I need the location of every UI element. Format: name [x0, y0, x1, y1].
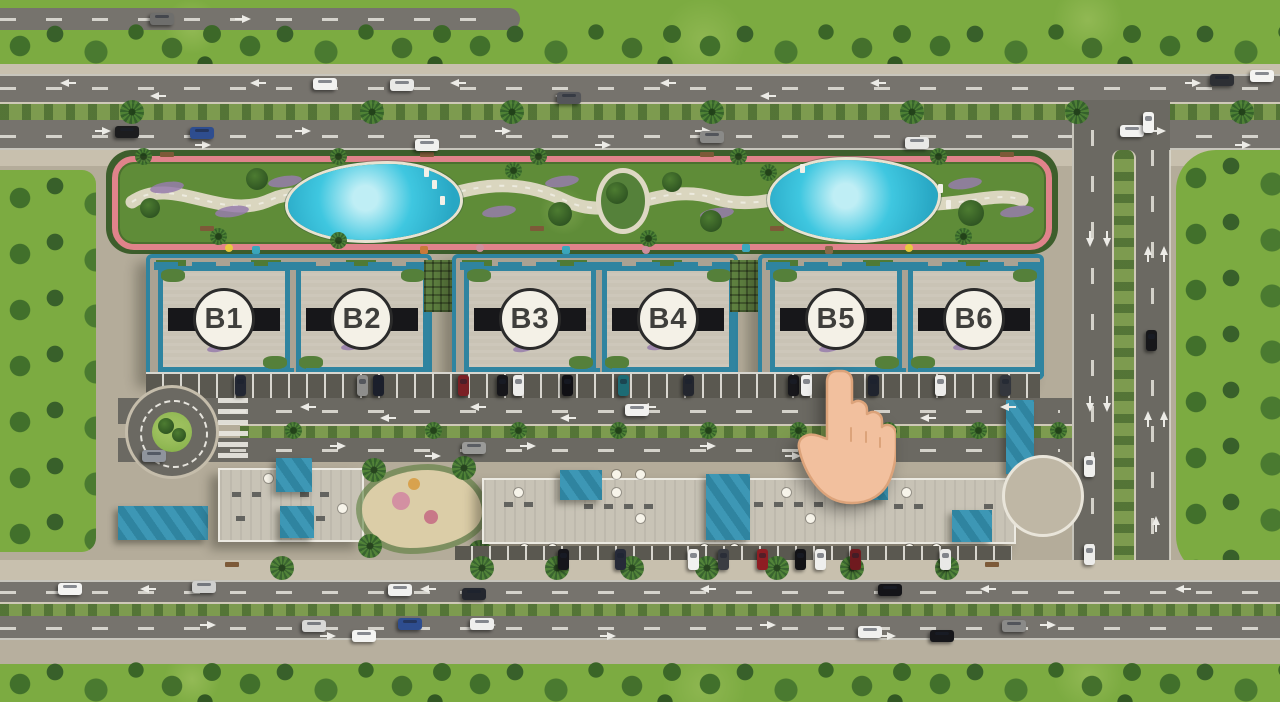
- lane-divider: [1091, 130, 1094, 590]
- lane-arrow: [880, 632, 896, 640]
- palm-tree: [530, 148, 547, 165]
- building-b5[interactable]: B5: [770, 266, 902, 372]
- parked-car: [935, 375, 946, 396]
- terrace-seating: [644, 504, 653, 509]
- roof-garden: [299, 356, 323, 369]
- bench: [530, 226, 544, 231]
- north-parking-row: [146, 372, 1040, 400]
- parked-car: [458, 375, 469, 396]
- sun-lounger: [946, 200, 951, 209]
- tree: [140, 198, 160, 218]
- building-b2[interactable]: B2: [296, 266, 428, 372]
- tree: [606, 182, 628, 204]
- palm-tree: [760, 164, 777, 181]
- pergola: [420, 246, 428, 254]
- roof-garden: [569, 356, 593, 369]
- east-park: [1176, 150, 1280, 576]
- lane-arrow: [1000, 403, 1016, 411]
- playground-item: [642, 246, 650, 254]
- car: [557, 92, 581, 104]
- lane-divider: [230, 449, 1060, 452]
- car: [192, 581, 216, 593]
- sun-lounger: [432, 180, 437, 189]
- lane-arrow: [1086, 396, 1094, 412]
- lane-arrow: [870, 79, 886, 87]
- south-tree-row: [0, 656, 1280, 702]
- car: [930, 630, 954, 642]
- parked-car: [940, 549, 951, 570]
- terrace-seating: [524, 502, 533, 507]
- car: [625, 404, 649, 416]
- car: [1084, 544, 1095, 565]
- bench: [700, 152, 714, 157]
- palm-tree: [730, 148, 747, 165]
- lane-arrow: [320, 632, 336, 640]
- building-label-circle[interactable]: B4: [637, 288, 699, 350]
- car: [302, 620, 326, 632]
- terrace-seating: [316, 516, 325, 521]
- lane-arrow: [1040, 621, 1056, 629]
- north-tree-row: [0, 18, 1280, 68]
- palm-tree: [330, 148, 347, 165]
- lane-arrow: [1235, 141, 1251, 149]
- parked-car: [850, 549, 861, 570]
- pergola: [825, 246, 833, 254]
- palm-tree: [270, 556, 294, 580]
- playground-item: [742, 244, 750, 252]
- parked-car: [373, 375, 384, 396]
- building-cluster-3: B5 B6: [758, 254, 1044, 380]
- palm-tree: [285, 422, 302, 439]
- lane-arrow: [1175, 585, 1191, 593]
- playground-item: [252, 246, 260, 254]
- building-label: B4: [648, 303, 687, 336]
- palm-tree: [765, 556, 789, 580]
- sun-lounger: [938, 184, 943, 193]
- lane-arrow: [420, 585, 436, 593]
- terrace-seating: [320, 492, 329, 497]
- retail-roof-block: [560, 470, 602, 500]
- car: [470, 618, 494, 630]
- bench: [420, 152, 434, 157]
- umbrella: [636, 470, 645, 479]
- lane-divider: [0, 87, 1280, 90]
- playground-item: [905, 244, 913, 252]
- terrace-seating: [236, 516, 245, 521]
- car: [415, 139, 439, 151]
- building-label: B2: [342, 303, 381, 336]
- lane-arrow: [150, 92, 166, 100]
- sun-lounger: [424, 168, 429, 177]
- lane-divider: [0, 627, 1280, 630]
- palm-tree: [505, 162, 522, 179]
- roof-garden: [263, 356, 287, 369]
- car: [190, 127, 214, 139]
- roof-garden: [911, 356, 935, 369]
- car: [352, 630, 376, 642]
- building-b6[interactable]: B6: [908, 266, 1040, 372]
- car: [700, 131, 724, 143]
- lane-arrow: [380, 414, 396, 422]
- bench: [770, 226, 784, 231]
- parked-car: [618, 375, 629, 396]
- clubhouse-roof-wing: [276, 458, 312, 492]
- lane-arrow: [95, 127, 111, 135]
- roof-garden: [605, 356, 629, 369]
- car: [1002, 620, 1026, 632]
- terrace-seating: [914, 504, 923, 509]
- parked-car: [757, 549, 768, 570]
- dropoff-court: [1002, 455, 1084, 537]
- retail-roof-block: [706, 474, 750, 540]
- building-cluster-1: B1 B2: [146, 254, 432, 380]
- tree: [246, 168, 268, 190]
- bench: [200, 226, 214, 231]
- playground-garden: [362, 470, 482, 548]
- car: [388, 584, 412, 596]
- car: [1146, 330, 1157, 351]
- parked-car: [1000, 375, 1011, 396]
- palm-tree: [1050, 422, 1067, 439]
- palm-tree: [358, 534, 382, 558]
- sun-lounger: [440, 196, 445, 205]
- masterplan-scene: B1 B2 B3 B4: [0, 0, 1280, 702]
- lane-arrow: [1103, 396, 1111, 412]
- palm-tree: [1230, 100, 1254, 124]
- umbrella: [636, 514, 645, 523]
- lane-arrow: [425, 452, 441, 460]
- parked-car: [562, 375, 573, 396]
- bench: [160, 152, 174, 157]
- umbrella: [338, 504, 347, 513]
- lane-arrow: [450, 79, 466, 87]
- road-edge-line: [1169, 150, 1171, 580]
- palm-tree: [362, 458, 386, 482]
- car: [58, 583, 82, 595]
- terrace-seating: [232, 492, 241, 497]
- parked-car: [795, 549, 806, 570]
- building-label-circle[interactable]: B5: [805, 288, 867, 350]
- palm-tree: [700, 100, 724, 124]
- tree: [548, 202, 572, 226]
- playground-item: [225, 244, 233, 252]
- umbrella: [806, 514, 815, 523]
- tree: [172, 428, 186, 442]
- roof-garden: [401, 269, 425, 282]
- tree: [700, 210, 722, 232]
- car: [858, 626, 882, 638]
- umbrella: [264, 474, 273, 483]
- lane-arrow: [330, 442, 346, 450]
- parked-car: [357, 375, 368, 396]
- umbrella: [902, 488, 911, 497]
- lane-arrow: [1160, 411, 1168, 427]
- parked-car: [497, 375, 508, 396]
- lane-arrow: [200, 621, 216, 629]
- car: [462, 588, 486, 600]
- terrace-seating: [624, 504, 633, 509]
- roof-garden: [467, 269, 491, 282]
- car: [1120, 125, 1144, 137]
- palm-tree: [955, 228, 972, 245]
- palm-tree: [500, 100, 524, 124]
- car: [905, 137, 929, 149]
- lane-arrow: [760, 621, 776, 629]
- parked-car: [718, 549, 729, 570]
- lane-arrow: [595, 141, 611, 149]
- parked-car: [688, 549, 699, 570]
- car: [390, 79, 414, 91]
- lane-arrow: [60, 79, 76, 87]
- lane-arrow: [300, 403, 316, 411]
- parked-car: [558, 549, 569, 570]
- car: [1210, 74, 1234, 86]
- building-label: B1: [204, 303, 243, 336]
- playground-item: [424, 510, 438, 524]
- building-label: B5: [816, 303, 855, 336]
- umbrella: [612, 488, 621, 497]
- car: [1084, 456, 1095, 477]
- bench: [985, 562, 999, 567]
- palm-tree: [330, 232, 347, 249]
- pergola-walkway: [730, 260, 758, 312]
- lane-arrow: [1152, 516, 1160, 532]
- terrace-seating: [252, 492, 261, 497]
- tree: [958, 200, 984, 226]
- lane-arrow: [700, 585, 716, 593]
- playground-item: [408, 478, 420, 490]
- lane-arrow: [700, 442, 716, 450]
- playground-item: [392, 492, 410, 510]
- palm-tree: [970, 422, 987, 439]
- car: [462, 442, 486, 454]
- parked-car: [815, 549, 826, 570]
- lane-arrow: [1103, 231, 1111, 247]
- playground-item: [476, 244, 484, 252]
- car: [115, 126, 139, 138]
- palm-tree: [135, 148, 152, 165]
- parked-car: [683, 375, 694, 396]
- palm-tree: [425, 422, 442, 439]
- car: [142, 450, 166, 462]
- lane-arrow: [495, 127, 511, 135]
- parked-car: [513, 375, 524, 396]
- building-label: B3: [510, 303, 549, 336]
- terrace-seating: [754, 502, 763, 507]
- terrace-seating: [584, 504, 593, 509]
- lane-arrow: [470, 403, 486, 411]
- car: [313, 78, 337, 90]
- building-label: B6: [954, 303, 993, 336]
- car: [1250, 70, 1274, 82]
- building-label-circle[interactable]: B3: [499, 288, 561, 350]
- east-road-median: [1112, 150, 1136, 580]
- sun-lounger: [800, 164, 805, 173]
- lane-arrow: [1086, 231, 1094, 247]
- terrace-seating: [604, 504, 613, 509]
- pergola-walkway: [424, 260, 452, 312]
- parked-car: [615, 549, 626, 570]
- roof-garden: [773, 269, 797, 282]
- building-b4[interactable]: B4: [602, 266, 734, 372]
- palm-tree: [900, 100, 924, 124]
- umbrella: [514, 488, 523, 497]
- retail-roof-block: [952, 510, 992, 542]
- building-label-circle[interactable]: B1: [193, 288, 255, 350]
- terrace-seating: [984, 504, 993, 509]
- palm-tree: [610, 422, 627, 439]
- lane-arrow: [560, 414, 576, 422]
- umbrella: [612, 470, 621, 479]
- lane-arrow: [920, 414, 936, 422]
- lane-arrow: [1185, 79, 1201, 87]
- lane-arrow: [1144, 246, 1152, 262]
- terrace-seating: [504, 502, 513, 507]
- lane-arrow: [195, 141, 211, 149]
- car: [398, 618, 422, 630]
- tree: [662, 172, 682, 192]
- lane-arrow: [250, 79, 266, 87]
- palm-tree: [452, 456, 476, 480]
- building-cluster-2: B3 B4: [452, 254, 738, 380]
- playground-item: [562, 246, 570, 254]
- palm-tree: [640, 230, 657, 247]
- lane-arrow: [660, 79, 676, 87]
- car: [1143, 112, 1154, 133]
- roof-garden: [707, 269, 731, 282]
- building-label-circle[interactable]: B2: [331, 288, 393, 350]
- roof-garden: [1013, 269, 1037, 282]
- pedestrian-crosswalk: [218, 398, 248, 462]
- building-label-circle[interactable]: B6: [943, 288, 1005, 350]
- lane-arrow: [295, 127, 311, 135]
- lane-arrow: [760, 92, 776, 100]
- lane-arrow: [520, 442, 536, 450]
- palm-tree: [470, 556, 494, 580]
- lane-arrow: [1160, 246, 1168, 262]
- lane-arrow: [140, 585, 156, 593]
- terrace-seating: [300, 492, 309, 497]
- bench: [225, 562, 239, 567]
- palm-tree: [1065, 100, 1089, 124]
- palm-tree: [120, 100, 144, 124]
- bench: [1000, 152, 1014, 157]
- lane-arrow: [600, 632, 616, 640]
- pointing-hand-icon: [778, 366, 896, 514]
- roof-garden: [161, 269, 185, 282]
- car: [878, 584, 902, 596]
- clubhouse-roof-wing: [280, 506, 314, 538]
- palm-tree: [700, 422, 717, 439]
- palm-tree: [510, 422, 527, 439]
- west-park: [0, 170, 96, 552]
- building-b3[interactable]: B3: [464, 266, 596, 372]
- lane-arrow: [980, 585, 996, 593]
- road-edge-line: [0, 74, 1280, 76]
- lane-arrow: [1144, 411, 1152, 427]
- road-edge-line: [1072, 110, 1074, 600]
- building-b1[interactable]: B1: [158, 266, 290, 372]
- palm-tree: [930, 148, 947, 165]
- palm-tree: [360, 100, 384, 124]
- entry-canopy: [118, 506, 208, 540]
- parked-car: [235, 375, 246, 396]
